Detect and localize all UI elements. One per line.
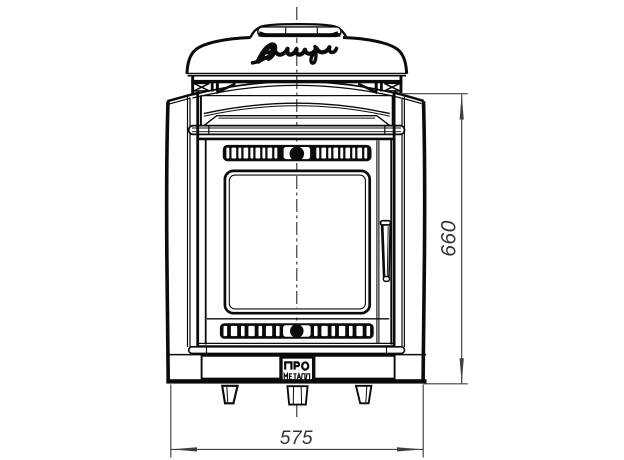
svg-text:575: 575	[280, 428, 313, 449]
svg-text:660: 660	[438, 220, 461, 257]
